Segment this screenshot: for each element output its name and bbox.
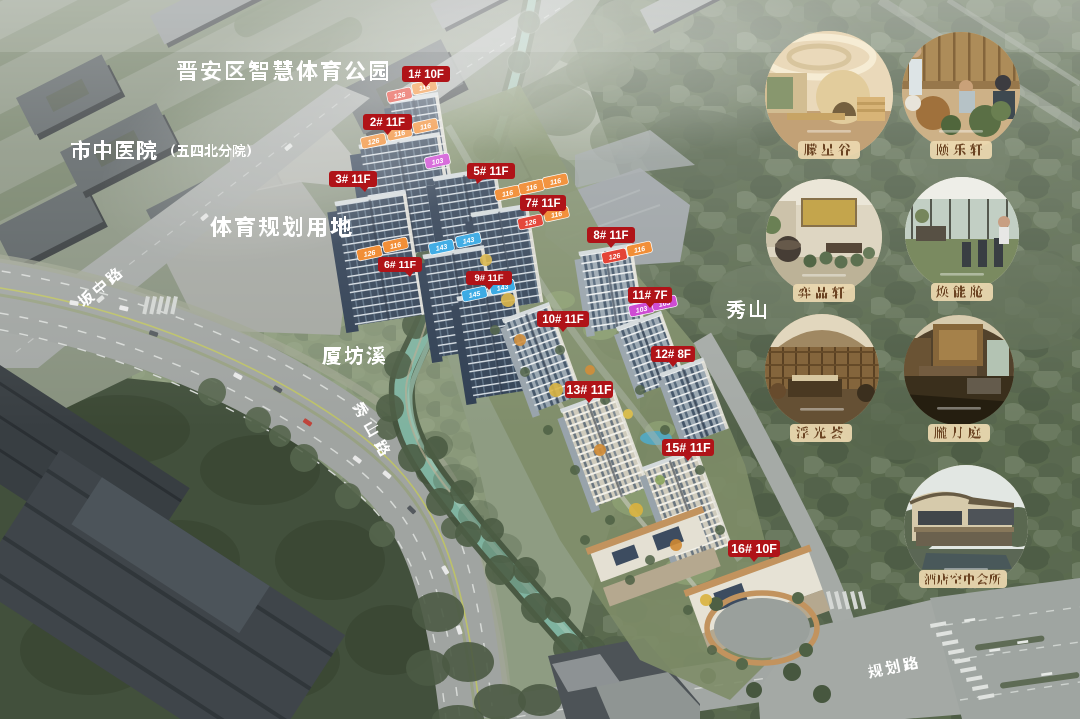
- svg-text:12# 8F: 12# 8F: [655, 349, 691, 361]
- svg-text:13# 11F: 13# 11F: [566, 383, 612, 397]
- svg-text:5# 11F: 5# 11F: [473, 166, 508, 178]
- svg-text:8# 11F: 8# 11F: [593, 230, 628, 242]
- svg-text:16# 10F: 16# 10F: [731, 542, 777, 556]
- svg-text:10# 11F: 10# 11F: [542, 314, 584, 326]
- svg-text:2# 11F: 2# 11F: [370, 117, 405, 129]
- svg-text:7# 11F: 7# 11F: [525, 198, 560, 210]
- svg-text:6# 11F: 6# 11F: [384, 259, 417, 271]
- svg-text:15# 11F: 15# 11F: [665, 441, 711, 455]
- svg-text:11# 7F: 11# 7F: [632, 290, 667, 302]
- svg-text:1# 10F: 1# 10F: [408, 69, 444, 81]
- svg-text:9# 11F: 9# 11F: [474, 273, 503, 284]
- svg-text:3# 11F: 3# 11F: [335, 174, 370, 186]
